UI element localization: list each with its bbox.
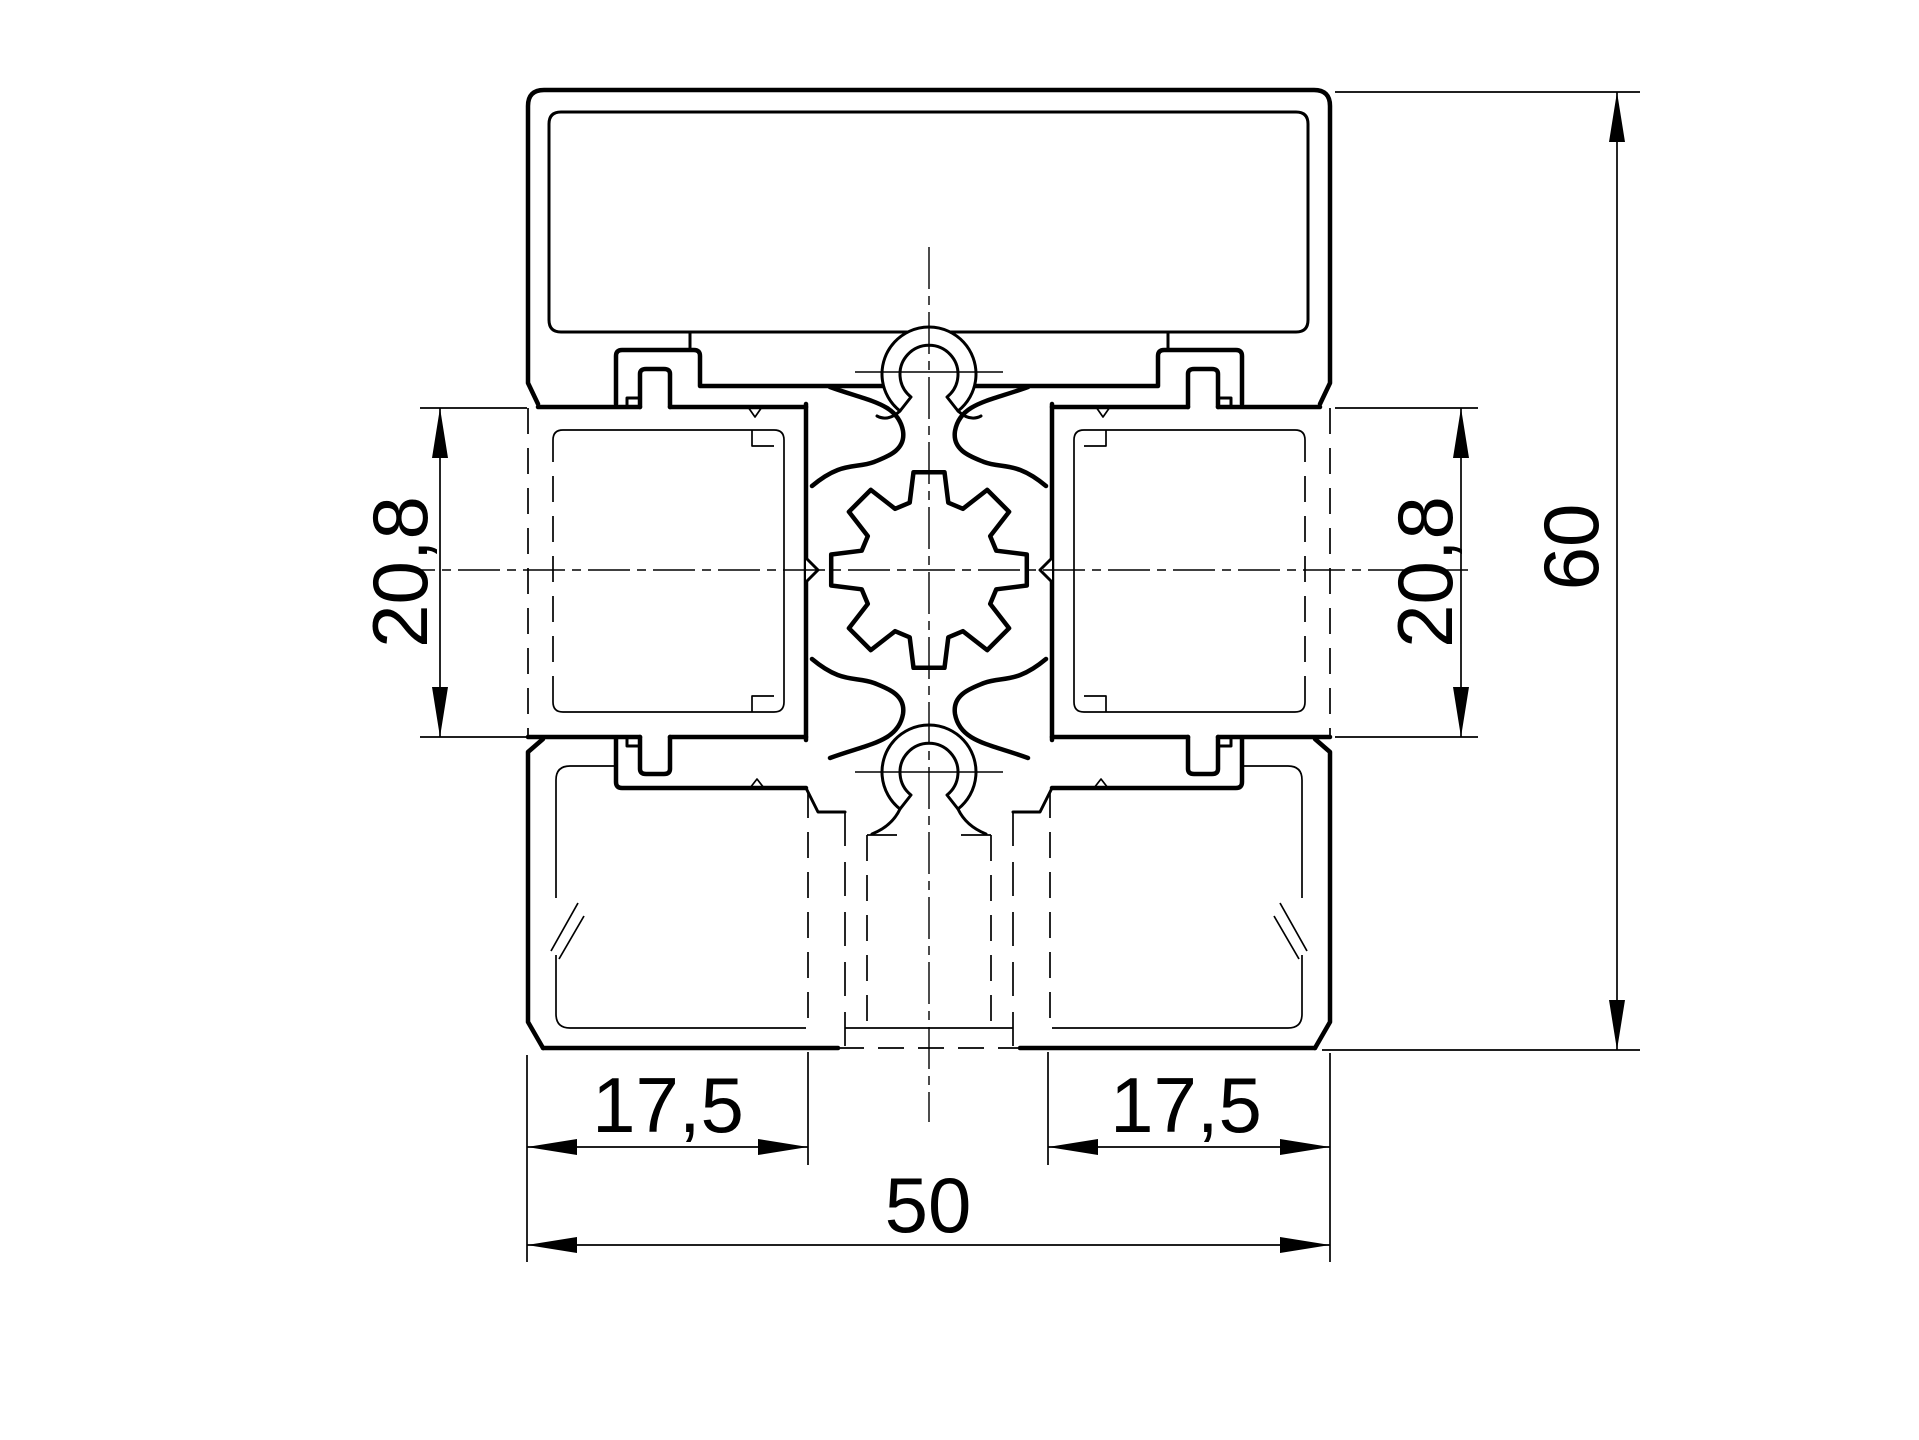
bottom-channel <box>528 739 845 1048</box>
side-square-tube <box>528 369 818 774</box>
dim-label-width-total: 50 <box>885 1161 972 1249</box>
technical-drawing: 20,8 20,8 60 17,5 17,5 50 <box>0 0 1919 1440</box>
drawing-canvas: 20,8 20,8 60 17,5 17,5 50 <box>0 0 1919 1440</box>
dim-label-slot-left: 20,8 <box>356 496 444 648</box>
dim-label-slot-right: 20,8 <box>1381 496 1469 648</box>
dim-label-foot-left: 17,5 <box>592 1061 744 1149</box>
dim-label-height-total: 60 <box>1527 504 1615 591</box>
centerlines <box>393 247 1468 1122</box>
dim-label-foot-right: 17,5 <box>1110 1061 1262 1149</box>
